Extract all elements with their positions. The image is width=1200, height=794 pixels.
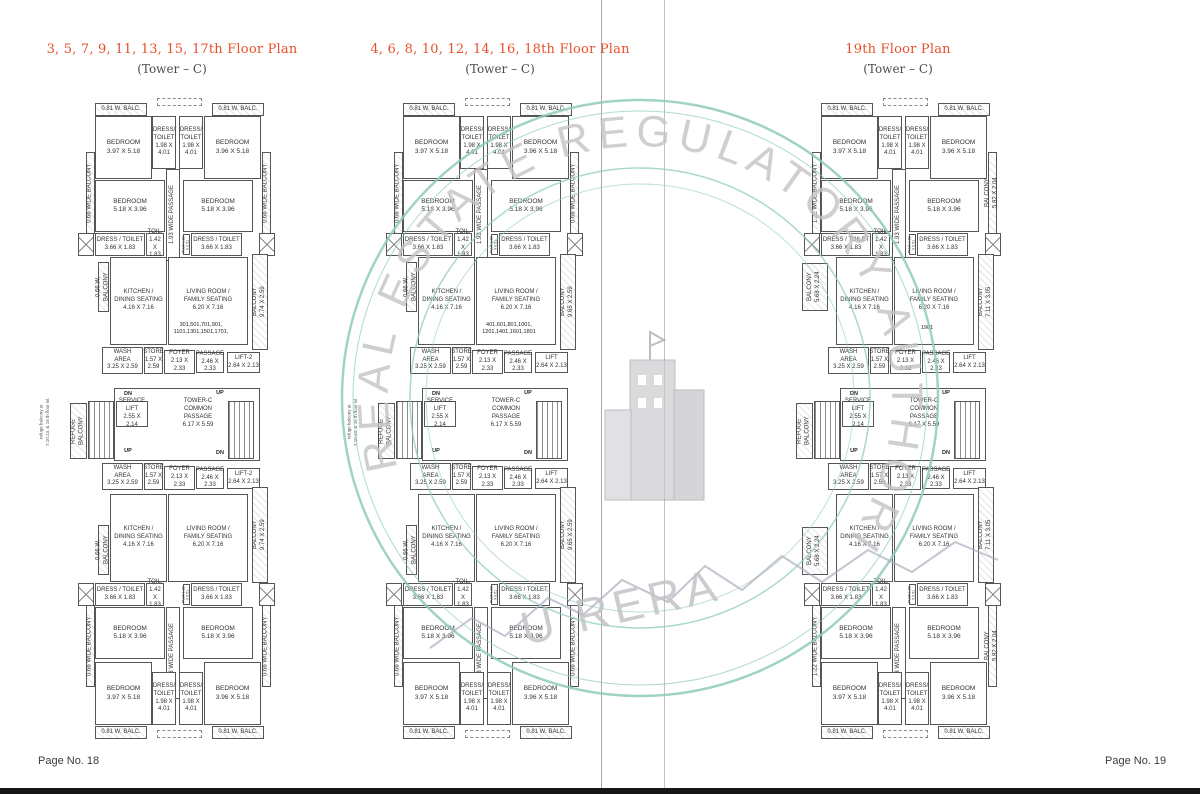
room-wash: WASH AREA 3.25 X 2.59 [828, 463, 869, 490]
side-balcony: 0.66 WIDE BALCONY [86, 605, 95, 687]
balcony: BALCONY 9.74 X 2.59 [252, 487, 268, 583]
stairs [536, 401, 562, 459]
top-balcony: 0.81 W. BALC. [212, 103, 264, 116]
side-balcony: 0.66 WIDE BALCONY [394, 152, 403, 234]
room-living: LIVING ROOM / FAMILY SEATING 6.20 X 7.16 [476, 494, 556, 582]
unit-numbers: 301,501,701,901, 1101,1301,1501,1701, [170, 321, 232, 337]
wide-passage: 1.93 WIDE PASSAGE [892, 169, 906, 261]
room-dress-toilet: DRESS/ TOILET 1.98 X 4.01 [487, 672, 511, 725]
room-bedroom: BEDROOM 3.96 X 5.18 [930, 116, 987, 179]
wide-passage: 1.93 WIDE PASSAGE [474, 169, 488, 261]
lift: LIFT 2.64 X 2.13 [953, 352, 986, 373]
room-kitchen: KITCHEN / DINING SEATING 4.16 X 7.16 [836, 257, 893, 345]
room-bedroom: BEDROOM 3.97 X 5.18 [821, 662, 878, 725]
dashed-strip [883, 730, 928, 738]
direction-label: UP [428, 447, 444, 456]
room-passage: PASSAGE 2.46 X 2.33 [504, 468, 532, 489]
room-bedroom: BEDROOM 3.97 X 5.18 [95, 662, 152, 725]
room-dress-toilet: DRESS / TOILET 3.66 X 1.83 [917, 583, 968, 606]
balcony: BALCONY 9.65 X 2.59 [560, 254, 576, 350]
direction-label: DN [520, 449, 536, 458]
plan-title: 4, 6, 8, 10, 12, 14, 16, 18th Floor Plan [330, 42, 670, 57]
side-balcony: 0.66 WIDE BALCONY [570, 605, 579, 687]
room-bedroom: BEDROOM 3.97 X 5.18 [821, 116, 878, 179]
room-wash: WASH AREA 3.25 X 2.59 [828, 347, 869, 374]
room-toilet: TOIL. 1.42 X 1.83 [872, 233, 890, 256]
room-wash: WASH AREA 3.25 X 2.59 [410, 347, 451, 374]
kitchen-balcony: 0.66 W. BALCONY [406, 262, 417, 312]
room-dress-toilet: DRESS/ TOILET 1.98 X 4.01 [878, 116, 902, 169]
room-dress-toilet: DRESS/ TOILET 1.98 X 4.01 [179, 672, 203, 725]
floor-plan-even-floors: 0.81 W. BALC.0.81 W. BALC.BEDROOM 3.97 X… [370, 95, 610, 747]
lift: LIFT 2.64 X 2.13 [953, 468, 986, 489]
room-dress-toilet: DRESS / TOILET 3.66 X 1.83 [821, 583, 871, 606]
puja-niche: PUJA 1.83 X 0.51 [183, 584, 190, 605]
room-foyer: FOYER 2.13 X 2.33 [890, 466, 921, 490]
room-dress-toilet: DRESS / TOILET 3.66 X 1.83 [403, 233, 453, 256]
dashed-strip [157, 730, 202, 738]
refuge-note: refuge balcony at 7,10,13, & 16 th floor… [342, 389, 364, 455]
stairs [228, 401, 254, 459]
side-balcony: BALCONY 5.92 X 2.04 [988, 605, 997, 687]
duct-box [386, 233, 402, 256]
room-living: LIVING ROOM / FAMILY SEATING 6.20 X 7.16 [894, 494, 974, 582]
duct-box [78, 233, 94, 256]
top-balcony: 0.81 W. BALC. [821, 726, 873, 739]
bottom-edge-bar [0, 788, 1200, 794]
direction-label: DN [120, 390, 136, 399]
puja-niche: PUJA 1.83 X 0.51 [909, 234, 916, 255]
room-bedroom: BEDROOM 3.96 X 5.18 [930, 662, 987, 725]
room-bedroom: BEDROOM 5.18 X 3.96 [909, 607, 979, 659]
refuge-balcony: REFUGE BALCONY [796, 403, 813, 459]
watermark-building-icon [605, 332, 704, 500]
direction-label: DN [938, 449, 954, 458]
balcony: BALCONY 9.65 X 2.59 [560, 487, 576, 583]
room-passage: PASSAGE 2.46 X 2.33 [922, 352, 950, 373]
room-toilet: TOIL. 1.42 X 1.83 [454, 583, 472, 606]
room-bedroom: BEDROOM 5.18 X 3.96 [909, 180, 979, 232]
floor-plan-19th-floor: 0.81 W. BALC.0.81 W. BALC.BEDROOM 3.97 X… [788, 95, 1028, 747]
stairs [954, 401, 980, 459]
plan-subtitle: (Tower – C) [2, 62, 342, 76]
puja-niche: PUJA 1.83 X 0.51 [491, 234, 498, 255]
wide-passage: 1.93 WIDE PASSAGE [166, 169, 180, 261]
duct-box [259, 583, 275, 606]
room-living: LIVING ROOM / FAMILY SEATING 6.20 X 7.16 [168, 494, 248, 582]
room-bedroom: BEDROOM 3.97 X 5.18 [403, 662, 460, 725]
room-dress-toilet: DRESS / TOILET 3.66 X 1.83 [499, 233, 550, 256]
balcony: BALCONY 7.11 X 3.05 [978, 487, 994, 583]
room-dress-toilet: DRESS/ TOILET 1.98 X 4.01 [152, 672, 176, 725]
room-store: STORE 1.57 X 2.59 [870, 347, 889, 374]
room-dress-toilet: DRESS / TOILET 3.66 X 1.83 [821, 233, 871, 256]
refuge-balcony: REFUGE BALCONY [70, 403, 87, 459]
room-bedroom: BEDROOM 5.18 X 3.96 [183, 607, 253, 659]
room-kitchen: KITCHEN / DINING SEATING 4.16 X 7.16 [418, 257, 475, 345]
stairs [814, 401, 840, 459]
room-bedroom: BEDROOM 5.18 X 3.96 [821, 180, 891, 232]
room-dress-toilet: DRESS / TOILET 3.66 X 1.83 [403, 583, 453, 606]
duct-box [386, 583, 402, 606]
top-balcony: 0.81 W. BALC. [938, 726, 990, 739]
room-store: STORE 1.57 X 2.59 [452, 463, 471, 490]
room-bedroom: BEDROOM 3.96 X 5.18 [204, 116, 261, 179]
room-bedroom: BEDROOM 3.96 X 5.18 [204, 662, 261, 725]
plan-3-title-block: 19th Floor Plan (Tower – C) [728, 42, 1068, 76]
room-store: STORE 1.57 X 2.59 [870, 463, 889, 490]
plan-title: 19th Floor Plan [728, 42, 1068, 57]
kitchen-balcony: 0.66 W. BALCONY [98, 525, 109, 575]
room-kitchen: KITCHEN / DINING SEATING 4.16 X 7.16 [836, 494, 893, 582]
dashed-strip [883, 98, 928, 106]
room-kitchen: KITCHEN / DINING SEATING 4.16 X 7.16 [418, 494, 475, 582]
direction-label: UP [120, 447, 136, 456]
duct-box [259, 233, 275, 256]
room-toilet: TOIL. 1.42 X 1.83 [872, 583, 890, 606]
side-balcony: 1.22 WIDE BALCONY [812, 605, 821, 687]
room-store: STORE 1.57 X 2.59 [144, 347, 163, 374]
room-foyer: FOYER 2.13 X 2.33 [472, 350, 503, 374]
room-dress-toilet: DRESS/ TOILET 1.98 X 4.01 [905, 672, 929, 725]
room-foyer: FOYER 2.13 X 2.33 [890, 350, 921, 374]
duct-box [78, 583, 94, 606]
puja-niche: PUJA 1.83 X 0.51 [491, 584, 498, 605]
common-passage: TOWER-C COMMON PASSAGE 6.17 X 5.59 [888, 393, 960, 435]
stairs [88, 401, 114, 459]
refuge-balcony: REFUGE BALCONY [378, 403, 395, 459]
room-wash: WASH AREA 3.25 X 2.59 [102, 463, 143, 490]
page-number-right: Page No. 19 [1105, 755, 1166, 767]
room-bedroom: BEDROOM 5.18 X 3.96 [403, 180, 473, 232]
room-store: STORE 1.57 X 2.59 [144, 463, 163, 490]
duct-box [567, 233, 583, 256]
room-dress-toilet: DRESS/ TOILET 1.98 X 4.01 [460, 116, 484, 169]
service-lift: SERVICE LIFT 2.55 X 2.14 [116, 401, 148, 427]
common-passage: TOWER-C COMMON PASSAGE 6.17 X 5.59 [162, 393, 234, 435]
stairs [396, 401, 422, 459]
room-bedroom: BEDROOM 3.97 X 5.18 [403, 116, 460, 179]
direction-label: DN [846, 390, 862, 399]
direction-label: UP [212, 389, 228, 398]
top-balcony: 0.81 W. BALC. [95, 726, 147, 739]
unit-numbers: 1901 [896, 321, 958, 337]
lift: LIFT-2 2.64 X 2.13 [227, 468, 260, 489]
dashed-strip [157, 98, 202, 106]
room-passage: PASSAGE 2.46 X 2.33 [922, 468, 950, 489]
room-toilet: TOIL. 1.42 X 1.83 [146, 233, 164, 256]
side-balcony: 0.66 WIDE BALCONY [86, 152, 95, 234]
top-balcony: 0.81 W. BALC. [95, 103, 147, 116]
room-dress-toilet: DRESS/ TOILET 1.98 X 4.01 [460, 672, 484, 725]
unit-numbers: 401,601,801,1001, 1201,1401,1601,1801 [478, 321, 540, 337]
room-bedroom: BEDROOM 5.18 X 3.96 [95, 180, 165, 232]
direction-label: UP [846, 447, 862, 456]
duct-box [804, 233, 820, 256]
top-balcony: 0.81 W. BALC. [520, 103, 572, 116]
service-lift: SERVICE LIFT 2.55 X 2.14 [424, 401, 456, 427]
common-passage: TOWER-C COMMON PASSAGE 6.17 X 5.59 [470, 393, 542, 435]
room-dress-toilet: DRESS / TOILET 3.66 X 1.83 [499, 583, 550, 606]
kitchen-balcony: 0.66 W. BALCONY [406, 525, 417, 575]
room-dress-toilet: DRESS / TOILET 3.66 X 1.83 [191, 233, 242, 256]
room-wash: WASH AREA 3.25 X 2.59 [102, 347, 143, 374]
top-balcony: 0.81 W. BALC. [403, 726, 455, 739]
room-passage: PASSAGE 2.46 X 2.33 [504, 352, 532, 373]
room-foyer: FOYER 2.13 X 2.33 [164, 350, 195, 374]
side-balcony: 1.22 WIDE BALCONY [812, 152, 821, 234]
room-bedroom: BEDROOM 3.96 X 5.18 [512, 116, 569, 179]
lift: LIFT 2.64 X 2.13 [535, 352, 568, 373]
kitchen-balcony: BALCONY 5.68 X 2.24 [802, 263, 828, 311]
side-balcony: 0.66 WIDE BALCONY [394, 605, 403, 687]
side-balcony: 0.66 WIDE BALCONY [262, 152, 271, 234]
room-dress-toilet: DRESS/ TOILET 1.98 X 4.01 [878, 672, 902, 725]
plan-1-title-block: 3, 5, 7, 9, 11, 13, 15, 17th Floor Plan … [2, 42, 342, 76]
room-bedroom: BEDROOM 5.18 X 3.96 [183, 180, 253, 232]
floor-plan-odd-floors: 0.81 W. BALC.0.81 W. BALC.BEDROOM 3.97 X… [62, 95, 302, 747]
room-dress-toilet: DRESS / TOILET 3.66 X 1.83 [95, 233, 145, 256]
room-dress-toilet: DRESS / TOILET 3.66 X 1.83 [95, 583, 145, 606]
top-balcony: 0.81 W. BALC. [938, 103, 990, 116]
room-dress-toilet: DRESS / TOILET 3.66 X 1.83 [917, 233, 968, 256]
lift: LIFT-2 2.64 X 2.13 [227, 352, 260, 373]
room-dress-toilet: DRESS/ TOILET 1.98 X 4.01 [487, 116, 511, 169]
room-bedroom: BEDROOM 5.18 X 3.96 [403, 607, 473, 659]
balcony: BALCONY 7.11 X 3.05 [978, 254, 994, 350]
balcony: BALCONY 9.74 X 2.59 [252, 254, 268, 350]
duct-box [804, 583, 820, 606]
room-foyer: FOYER 2.13 X 2.33 [164, 466, 195, 490]
room-bedroom: BEDROOM 5.18 X 3.96 [491, 607, 561, 659]
room-kitchen: KITCHEN / DINING SEATING 4.16 X 7.16 [110, 257, 167, 345]
plan-subtitle: (Tower – C) [728, 62, 1068, 76]
plan-subtitle: (Tower – C) [330, 62, 670, 76]
room-toilet: TOIL. 1.42 X 1.83 [146, 583, 164, 606]
room-passage: PASSAGE 2.46 X 2.33 [196, 468, 224, 489]
kitchen-balcony: BALCONY 5.68 X 2.24 [802, 527, 828, 575]
room-kitchen: KITCHEN / DINING SEATING 4.16 X 7.16 [110, 494, 167, 582]
direction-label: DN [428, 390, 444, 399]
room-dress-toilet: DRESS/ TOILET 1.98 X 4.01 [179, 116, 203, 169]
dashed-strip [465, 730, 510, 738]
side-balcony: 0.66 WIDE BALCONY [570, 152, 579, 234]
room-bedroom: BEDROOM 5.18 X 3.96 [491, 180, 561, 232]
room-bedroom: BEDROOM 3.96 X 5.18 [512, 662, 569, 725]
top-balcony: 0.81 W. BALC. [212, 726, 264, 739]
puja-niche: PUJA 1.83 X 0.51 [909, 584, 916, 605]
room-bedroom: BEDROOM 5.18 X 3.96 [95, 607, 165, 659]
room-dress-toilet: DRESS / TOILET 3.66 X 1.83 [191, 583, 242, 606]
room-dress-toilet: DRESS/ TOILET 1.98 X 4.01 [152, 116, 176, 169]
page-number-left: Page No. 18 [38, 755, 99, 767]
lift: LIFT 2.64 X 2.13 [535, 468, 568, 489]
duct-box [985, 233, 1001, 256]
room-bedroom: BEDROOM 3.97 X 5.18 [95, 116, 152, 179]
room-foyer: FOYER 2.13 X 2.33 [472, 466, 503, 490]
side-balcony: 0.66 WIDE BALCONY [262, 605, 271, 687]
room-store: STORE 1.57 X 2.59 [452, 347, 471, 374]
page-divider-right [664, 0, 665, 794]
room-passage: PASSAGE 2.46 X 2.33 [196, 352, 224, 373]
plan-title: 3, 5, 7, 9, 11, 13, 15, 17th Floor Plan [2, 42, 342, 57]
direction-label: UP [520, 389, 536, 398]
direction-label: DN [212, 449, 228, 458]
room-dress-toilet: DRESS/ TOILET 1.98 X 4.01 [905, 116, 929, 169]
service-lift: SERVICE LIFT 2.55 X 2.14 [842, 401, 874, 427]
dashed-strip [465, 98, 510, 106]
plan-2-title-block: 4, 6, 8, 10, 12, 14, 16, 18th Floor Plan… [330, 42, 670, 76]
room-wash: WASH AREA 3.25 X 2.59 [410, 463, 451, 490]
puja-niche: PUJA 1.83 X 0.51 [183, 234, 190, 255]
kitchen-balcony: 0.66 W. BALCONY [98, 262, 109, 312]
duct-box [567, 583, 583, 606]
side-balcony: BALCONY 5.92 X 2.04 [988, 152, 997, 234]
top-balcony: 0.81 W. BALC. [520, 726, 572, 739]
top-balcony: 0.81 W. BALC. [403, 103, 455, 116]
room-toilet: TOIL. 1.42 X 1.83 [454, 233, 472, 256]
direction-label: UP [938, 389, 954, 398]
refuge-note: refuge balcony at 7,10,13, & 16 th floor… [34, 389, 56, 455]
top-balcony: 0.81 W. BALC. [821, 103, 873, 116]
room-bedroom: BEDROOM 5.18 X 3.96 [821, 607, 891, 659]
duct-box [985, 583, 1001, 606]
